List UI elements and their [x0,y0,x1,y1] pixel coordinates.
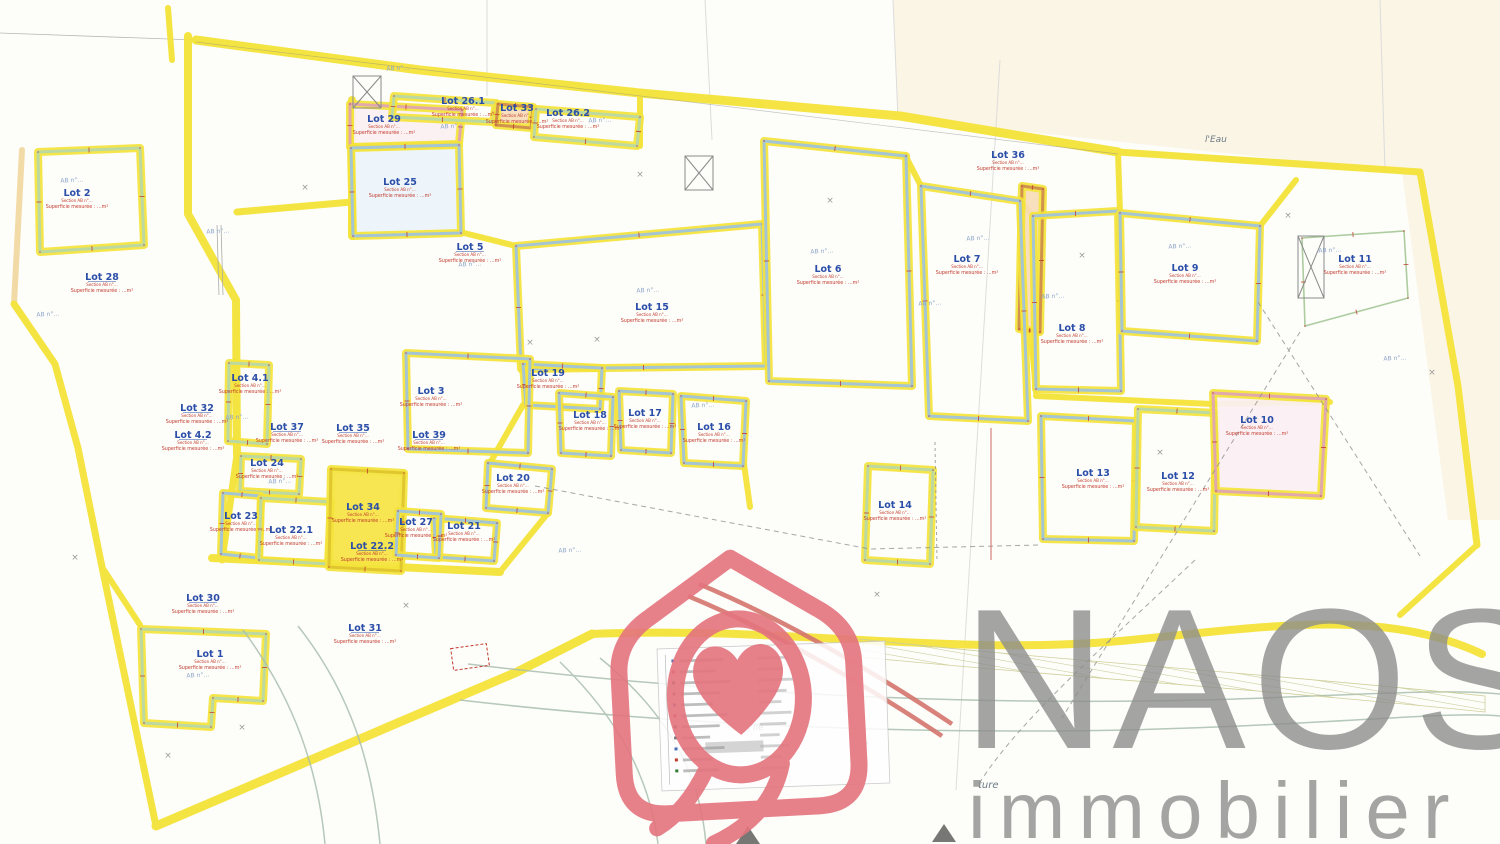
lot-area-note: Superficie mesurée : …m² [559,425,622,432]
cadastral-ref: AB n°… [1383,354,1406,362]
corner-mark [867,465,869,467]
corner-mark [405,352,407,354]
cadastral-ref: AB n°… [558,546,581,554]
survey-cross: × [636,170,644,180]
lot-area-note: Superficie mesurée : …m² [864,515,927,522]
corner-mark [535,108,537,110]
cadastral-ref: AB n°… [966,234,989,242]
lot-label: Lot 36Section AB n°…Superficie mesurée :… [977,150,1040,172]
lot-section-ref: Section AB n°… [1162,481,1193,486]
lot-area-note: Superficie mesurée : …m² [1147,486,1210,493]
corner-mark [529,358,531,360]
corner-mark [547,512,549,514]
corner-mark [929,563,931,565]
corner-mark [352,235,354,237]
corner-mark [1032,215,1034,217]
lot-area-note: Superficie mesurée : …m² [432,111,495,118]
lot-section-ref: Section AB n°… [187,603,218,608]
lot-label: Lot 16Section AB n°…Superficie mesurée :… [683,422,746,444]
lot-label: Lot 2Section AB n°…Superficie mesurée : … [46,188,109,210]
lot-section-ref: Section AB n°… [448,531,479,536]
survey-cross: × [1078,251,1086,261]
lot-area-note: Superficie mesurée : …m² [332,517,395,524]
corner-mark [39,251,41,253]
corner-mark [1256,340,1258,342]
cadastral-ref: AB n°… [458,260,481,268]
corner-mark [1039,331,1041,333]
corner-mark [763,140,765,142]
cadastral-ref: AB n°… [60,176,83,184]
corner-mark [612,396,614,398]
lot-section-ref: Section AB n°… [1077,478,1108,483]
corner-mark [349,103,351,105]
lot-label: Lot 22.1Section AB n°…Superficie mesurée… [260,525,323,547]
lot-area-note: Superficie mesurée : …m² [334,638,397,645]
lot-section-ref: Section AB n°… [86,282,117,287]
lot-area-note: Superficie mesurée : …m² [46,203,109,210]
corner-mark [742,465,744,467]
corner-mark [458,144,460,146]
corner-mark [932,469,934,471]
corner-mark [328,566,330,568]
corner-mark [928,415,930,417]
corner-mark [1042,538,1044,540]
lot-area-note: Superficie mesurée : …m² [219,388,282,395]
lot-section-ref: Section AB n°… [1241,425,1272,430]
parcel-border [1033,211,1121,391]
corner-mark [745,400,747,402]
corner-mark [522,363,524,365]
corner-mark [1320,495,1322,497]
corner-mark [227,440,229,442]
survey-cross: × [593,335,601,345]
survey-cross: × [826,196,834,206]
lot-area-note: Superficie mesurée : …m² [256,437,319,444]
parcel-lot-20 [486,463,552,513]
lot-section-ref: Section AB n°… [698,432,729,437]
corner-mark [440,513,442,515]
corner-mark [143,244,145,246]
lot-section-ref: Section AB n°… [234,383,265,388]
lot-section-ref: Section AB n°… [368,124,399,129]
corner-mark [1119,212,1121,214]
corner-mark [672,393,674,395]
lot-label: Lot 12Section AB n°…Superficie mesurée :… [1147,471,1210,493]
survey-cross: × [71,553,79,563]
lot-section-ref: Section AB n°… [1056,333,1087,338]
road-mark [932,824,956,842]
lot-section-ref: Section AB n°… [225,521,256,526]
lot-section-ref: Section AB n°… [629,418,660,423]
corner-mark [258,559,260,561]
corner-mark [920,185,922,187]
corner-mark [670,452,672,454]
watermark-brand-sub: immobilier [968,766,1463,844]
canal-lines [217,225,223,295]
lot-section-ref: Section AB n°… [271,432,302,437]
lot-section-ref: Section AB n°… [194,659,225,664]
corner-mark [1121,330,1123,332]
survey-cross: × [1428,368,1436,378]
lot-section-ref: Section AB n°… [384,187,415,192]
lot-section-ref: Section AB n°… [181,413,212,418]
lot-label: Lot 35Section AB n°…Superficie mesurée :… [322,423,385,445]
corner-mark [139,147,141,149]
corner-mark [558,392,560,394]
parcel-lot-15 [516,224,766,369]
corner-mark [393,95,395,97]
cadastral-ref: AB n°… [588,116,611,124]
lot-label: Lot 1Section AB n°…Superficie mesurée : … [179,649,242,671]
corner-mark [222,492,224,494]
survey-cross: × [402,601,410,611]
lot-section-ref: Section AB n°… [337,433,368,438]
lot-area-note: Superficie mesurée : …m² [683,437,746,444]
corner-mark [400,570,402,572]
corner-mark [143,722,145,724]
corner-mark [300,458,302,460]
lot-area-note: Superficie mesurée : …m² [486,118,549,125]
lot-area-note: Superficie mesurée : …m² [621,317,684,324]
lot-label: Lot 9Section AB n°…Superficie mesurée : … [1154,263,1217,285]
corner-mark [1212,392,1214,394]
lot-area-note: Superficie mesurée : …m² [797,279,860,286]
lot-area-note: Superficie mesurée : …m² [353,129,416,136]
survey-cross: × [873,590,881,600]
lot-area-note: Superficie mesurée : …m² [1062,483,1125,490]
cadastral-ref: AB n°… [1168,242,1191,250]
corner-mark [1120,390,1122,392]
cadastral-ref: AB n°… [1041,292,1064,300]
corner-mark [515,245,517,247]
lot-section-ref: Section AB n°… [574,420,605,425]
corner-mark [683,462,685,464]
corner-mark [487,462,489,464]
corner-mark [228,362,230,364]
corner-mark [395,554,397,556]
corner-mark [1035,388,1037,390]
legend-bullet [675,758,678,761]
corner-mark [610,455,612,457]
parcel-border [1136,409,1216,531]
cadastral-ref: AB n°… [225,413,248,421]
corner-mark [268,364,270,366]
corner-mark [618,390,620,392]
corner-mark [533,136,535,138]
watermark-brand-name: NAOS [962,568,1500,791]
lot-area-note: Superficie mesurée : …m² [71,287,134,294]
corner-mark [1259,225,1261,227]
corner-mark [560,452,562,454]
lot-section-ref: Section AB n°… [812,274,843,279]
corner-mark [905,155,907,157]
lot-section-ref: Section AB n°… [177,440,208,445]
lot-section-ref: Section AB n°… [275,535,306,540]
lot-section-ref: Section AB n°… [447,106,478,111]
lot-label: Lot 4.2Section AB n°…Superficie mesurée … [162,430,225,452]
lot-area-note: Superficie mesurée : …m² [614,423,677,430]
place-name: l'Eau [1205,135,1227,145]
corner-mark [1215,490,1217,492]
corner-mark [438,557,440,559]
lot-section-ref: Section AB n°… [992,160,1023,165]
corner-mark [496,522,498,524]
corner-mark [403,472,405,474]
corner-mark [551,468,553,470]
corner-mark [601,367,603,369]
lot-section-ref: Section AB n°… [61,198,92,203]
lot-section-ref: Section AB n°… [251,468,282,473]
corner-mark [265,633,267,635]
lot-section-ref: Section AB n°… [347,512,378,517]
corner-mark [1213,530,1215,532]
dimension-tick [835,146,836,151]
lot-label: Lot 8Section AB n°…Superficie mesurée : … [1041,323,1104,345]
dimension-tick [636,131,641,132]
cadastral-plan-drawing: Lot 2Section AB n°…Superficie mesurée : … [0,0,1500,844]
lot-area-note: Superficie mesurée : …m² [936,269,999,276]
lot-area-note: Superficie mesurée : …m² [977,165,1040,172]
lot-section-ref: Section AB n°… [400,527,431,532]
corner-mark [460,232,462,234]
cadastral-ref: AB n°… [636,286,659,294]
lot-label: Lot 31Section AB n°…Superficie mesurée :… [334,623,397,645]
corner-mark [1021,185,1023,187]
corner-mark [330,468,332,470]
corner-mark [639,116,641,118]
lot-section-ref: Section AB n°… [1169,273,1200,278]
lot-area-note: Superficie mesurée : …m² [400,401,463,408]
corner-mark [37,151,39,153]
corner-mark [1133,540,1135,542]
lot-section-ref: Section AB n°… [349,633,380,638]
corner-mark [262,700,264,702]
corner-mark [1301,237,1303,239]
parcel-lot-8 [1033,211,1121,391]
corner-mark [260,497,262,499]
lot-label: Lot 6Section AB n°…Superficie mesurée : … [797,264,860,286]
corner-mark [1135,526,1137,528]
lot-label: Lot 32Section AB n°…Superficie mesurée :… [166,403,229,425]
lot-area-note: Superficie mesurée : …m² [398,445,461,452]
survey-cross: × [164,751,172,761]
corner-mark [497,103,499,105]
cadastral-ref: AB n°… [691,401,714,409]
lot-section-ref: Section AB n°… [1339,264,1370,269]
lot-area-note: Superficie mesurée : …m² [322,438,385,445]
dimension-tick [240,554,241,559]
lot-area-note: Superficie mesurée : …m² [385,532,448,539]
lot-label: Lot 15Section AB n°…Superficie mesurée :… [621,302,684,324]
lot-area-note: Superficie mesurée : …m² [482,488,545,495]
lot-section-ref: Section AB n°… [951,264,982,269]
corner-mark [298,493,300,495]
cadastral-ref: AB n°… [810,247,833,255]
lot-label: Lot 28Section AB n°…Superficie mesurée :… [71,272,134,294]
survey-cross: × [238,723,246,733]
lot-section-ref: Section AB n°… [636,312,667,317]
corner-mark [680,395,682,397]
cadastral-ref: AB n°… [1318,246,1341,254]
corner-mark [210,726,212,728]
corner-mark [620,449,622,451]
lot-section-ref: Section AB n°… [497,483,528,488]
cadastral-ref: AB n°… [206,227,229,235]
corner-mark [493,560,495,562]
lot-area-note: Superficie mesurée : …m² [341,556,404,563]
corner-mark [1027,420,1029,422]
corner-mark [350,147,352,149]
cadastral-ref: AB n°… [440,122,463,130]
lot-area-note: Superficie mesurée : …m² [162,445,225,452]
lot-label: Lot 7Section AB n°…Superficie mesurée : … [936,254,999,276]
corner-mark [1040,415,1042,417]
corner-mark [1137,408,1139,410]
corner-mark [527,452,529,454]
corner-mark [1018,328,1020,330]
lot-area-note: Superficie mesurée : …m² [210,526,273,533]
lot-area-note: Superficie mesurée : …m² [1041,338,1104,345]
lot-label: Lot 30Section AB n°…Superficie mesurée :… [172,593,235,615]
lot-area-note: Superficie mesurée : …m² [1324,269,1387,276]
corner-mark [397,510,399,512]
lot-area-note: Superficie mesurée : …m² [179,664,242,671]
corner-mark [911,385,913,387]
corner-mark [768,380,770,382]
cadastral-ref: AB n°… [386,64,409,72]
lot-section-ref: Section AB n°… [413,440,444,445]
lot-area-note: Superficie mesurée : …m² [517,383,580,390]
scanned-division-plan: Lot 2Section AB n°…Superficie mesurée : … [0,0,1500,844]
corner-mark [220,553,222,555]
corner-mark [485,507,487,509]
lot-area-note: Superficie mesurée : …m² [369,192,432,199]
survey-cross: × [1284,211,1292,221]
lot-label: Lot 11Section AB n°…Superficie mesurée :… [1324,254,1387,276]
corner-mark [1403,230,1405,232]
lot-area-note: Superficie mesurée : …m² [172,608,235,615]
corner-mark [864,559,866,561]
lot-section-ref: Section AB n°… [356,551,387,556]
corner-mark [1019,200,1021,202]
parcel-lot-12 [1136,409,1216,531]
cadastral-ref: AB n°… [186,671,209,679]
lot-section-ref: Section AB n°… [415,396,446,401]
lot-area-note: Superficie mesurée : …m² [1154,278,1217,285]
corner-mark [636,145,638,147]
lot-section-ref: Section AB n°… [454,252,485,257]
lot-label: Lot 13Section AB n°…Superficie mesurée :… [1062,468,1125,490]
lot-area-note: Superficie mesurée : …m² [1226,430,1289,437]
survey-cross: × [1156,448,1164,458]
lot-label: Lot 14Section AB n°…Superficie mesurée :… [864,500,927,522]
parcel-border [1302,231,1408,326]
legend-bullet [675,769,678,772]
corner-mark [140,628,142,630]
corner-mark [1407,297,1409,299]
lot-area-note: Superficie mesurée : …m² [166,418,229,425]
lot-section-ref: Section AB n°… [532,378,563,383]
corner-mark [212,697,214,699]
cadastral-ref: AB n°… [268,477,291,485]
corner-mark [240,455,242,457]
cadastral-ref: AB n°… [918,299,941,307]
corner-mark [1042,188,1044,190]
lot-section-ref: Section AB n°… [501,113,532,118]
lot-section-ref: Section AB n°… [552,118,583,123]
cadastral-ref: AB n°… [36,310,59,318]
parcel-lot-10 [1213,393,1326,496]
corner-mark [1304,325,1306,327]
dimension-tick [1356,310,1357,315]
lot-area-note: Superficie mesurée : …m² [260,540,323,547]
legend-bullet [674,747,677,750]
lot-section-ref: Section AB n°… [879,510,910,515]
survey-cross: × [301,183,309,193]
survey-cross: × [526,338,534,348]
corner-mark [1325,398,1327,400]
